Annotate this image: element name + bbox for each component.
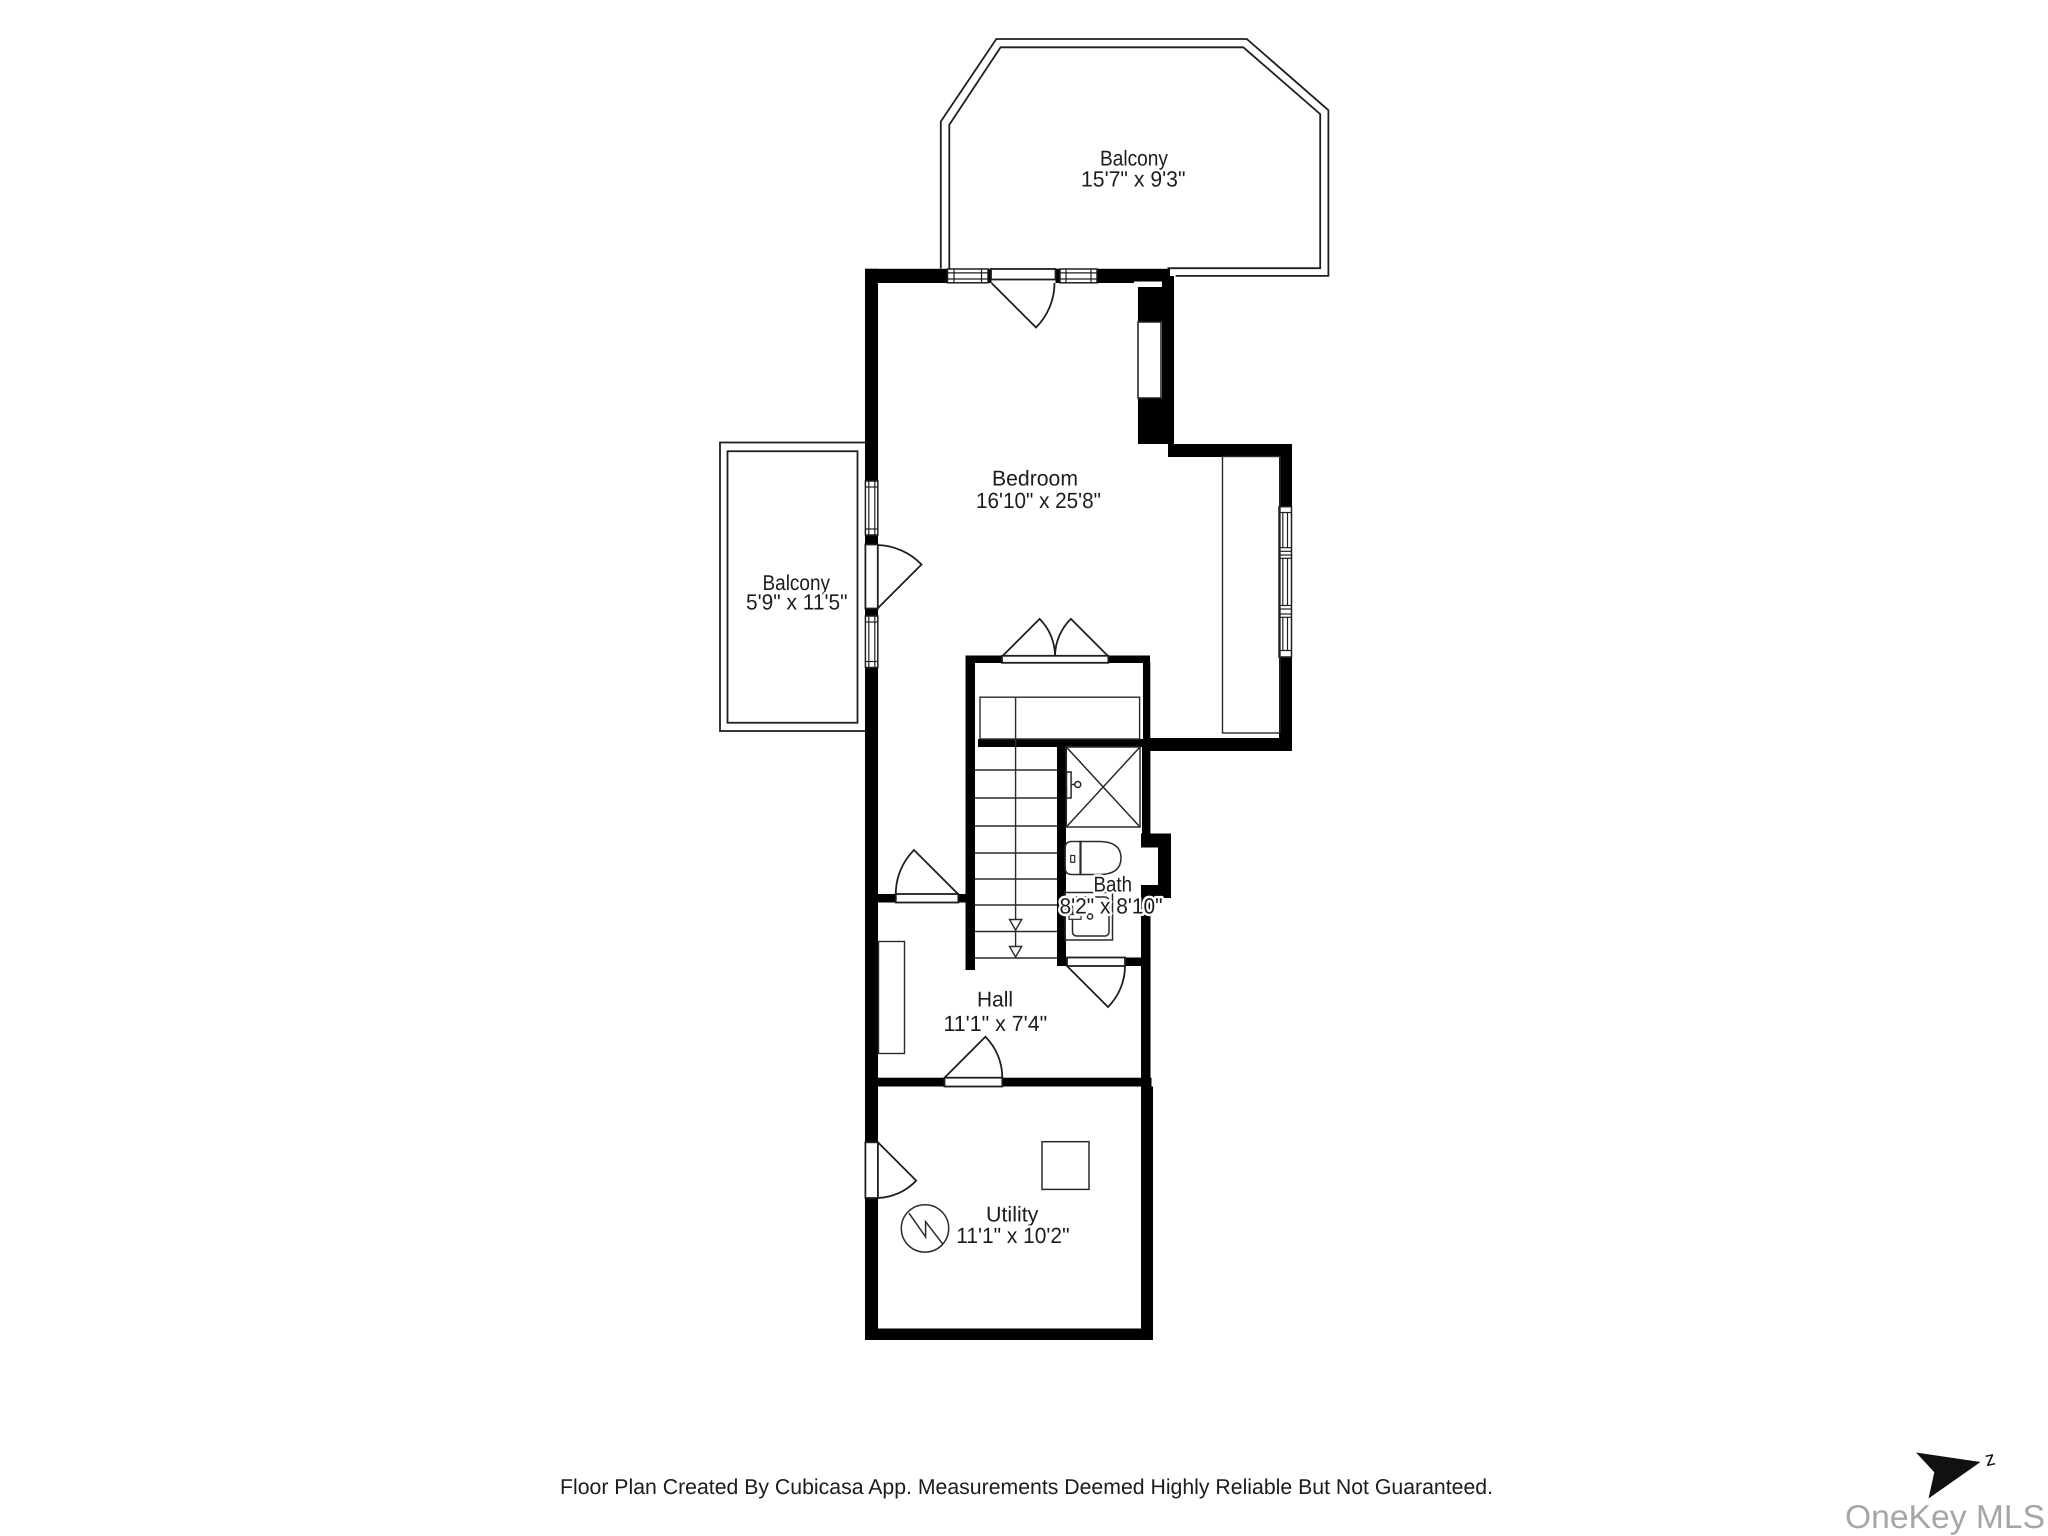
svg-text:Hall: Hall xyxy=(977,988,1013,1012)
svg-text:z: z xyxy=(1983,1448,1997,1472)
svg-text:Floor Plan Created By Cubicasa: Floor Plan Created By Cubicasa App. Meas… xyxy=(560,1475,1493,1499)
svg-text:8'2" x 8'10": 8'2" x 8'10" xyxy=(1060,894,1163,919)
svg-text:11'1" x 10'2": 11'1" x 10'2" xyxy=(956,1223,1069,1248)
svg-text:OneKey MLS: OneKey MLS xyxy=(1845,1498,2045,1535)
svg-text:16'10" x 25'8": 16'10" x 25'8" xyxy=(976,488,1101,513)
svg-text:5'9" x 11'5": 5'9" x 11'5" xyxy=(746,590,848,615)
svg-text:11'1" x 7'4": 11'1" x 7'4" xyxy=(944,1011,1048,1036)
svg-text:Bedroom: Bedroom xyxy=(992,467,1078,491)
svg-text:15'7" x 9'3": 15'7" x 9'3" xyxy=(1081,167,1186,192)
